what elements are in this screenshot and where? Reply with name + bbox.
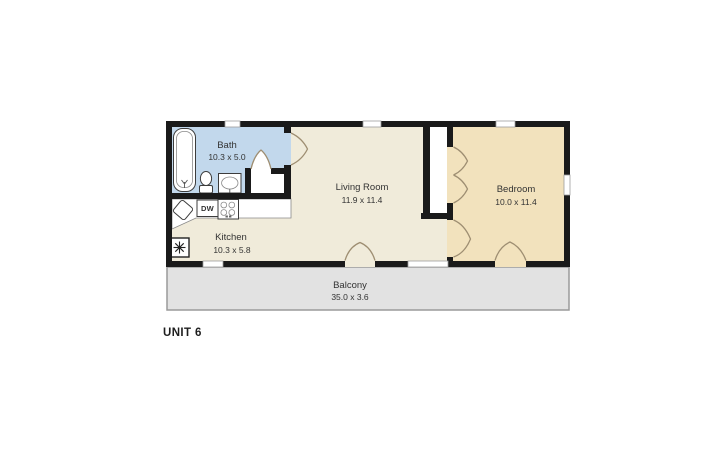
bathtub-icon xyxy=(174,129,196,192)
bedroom-door-opening xyxy=(447,220,453,257)
dishwasher-label: DW xyxy=(201,204,215,213)
wall-bath-closet-top-b xyxy=(271,168,291,174)
unit-title: UNIT 6 xyxy=(163,327,202,339)
bedroom-closet-opening xyxy=(447,147,453,203)
window-icon xyxy=(363,121,381,127)
bedroom-balcony-door-opening xyxy=(495,261,526,267)
room-dims-balcony: 35.0 x 3.6 xyxy=(331,292,369,302)
window-icon xyxy=(225,121,240,127)
bath-door-opening xyxy=(284,133,291,165)
toilet-icon xyxy=(200,172,213,194)
page: { "unit_label": "UNIT 6", "rooms": [ {"n… xyxy=(0,0,705,463)
room-label-kitchen: Kitchen xyxy=(215,232,247,243)
living-balcony-door-opening xyxy=(345,261,375,267)
room-dims-bath: 10.3 x 5.0 xyxy=(208,152,246,162)
floorplan: DW xyxy=(0,0,705,463)
bathroom-sink-icon xyxy=(219,174,242,194)
balcony-floor xyxy=(167,267,569,310)
wall-living-right xyxy=(423,121,430,213)
room-label-living: Living Room xyxy=(336,182,389,193)
window-icon xyxy=(496,121,515,127)
room-dims-kitchen: 10.3 x 5.8 xyxy=(213,245,251,255)
bedroom-closet-floor xyxy=(430,127,447,213)
room-dims-bedroom: 10.0 x 11.4 xyxy=(495,197,537,207)
window-icon xyxy=(564,175,570,195)
window-icon xyxy=(408,261,448,267)
window-icon xyxy=(203,261,223,267)
wall-bath-right-upper xyxy=(284,121,291,133)
snowflake-icon xyxy=(170,238,189,257)
wall-bedroom-left-mid xyxy=(447,203,453,220)
wall-bath-closet-top-a xyxy=(245,168,251,174)
room-label-bedroom: Bedroom xyxy=(497,184,536,195)
dishwasher-icon: DW xyxy=(197,200,218,217)
wall-bath-bottom xyxy=(166,193,291,199)
room-dims-living: 11.9 x 11.4 xyxy=(342,195,383,205)
room-label-balcony: Balcony xyxy=(333,280,367,291)
bath-closet-floor xyxy=(251,174,284,193)
room-label-bath: Bath xyxy=(217,140,237,151)
stove-icon xyxy=(218,200,239,220)
wall-bedroom-left-upper xyxy=(447,121,453,147)
